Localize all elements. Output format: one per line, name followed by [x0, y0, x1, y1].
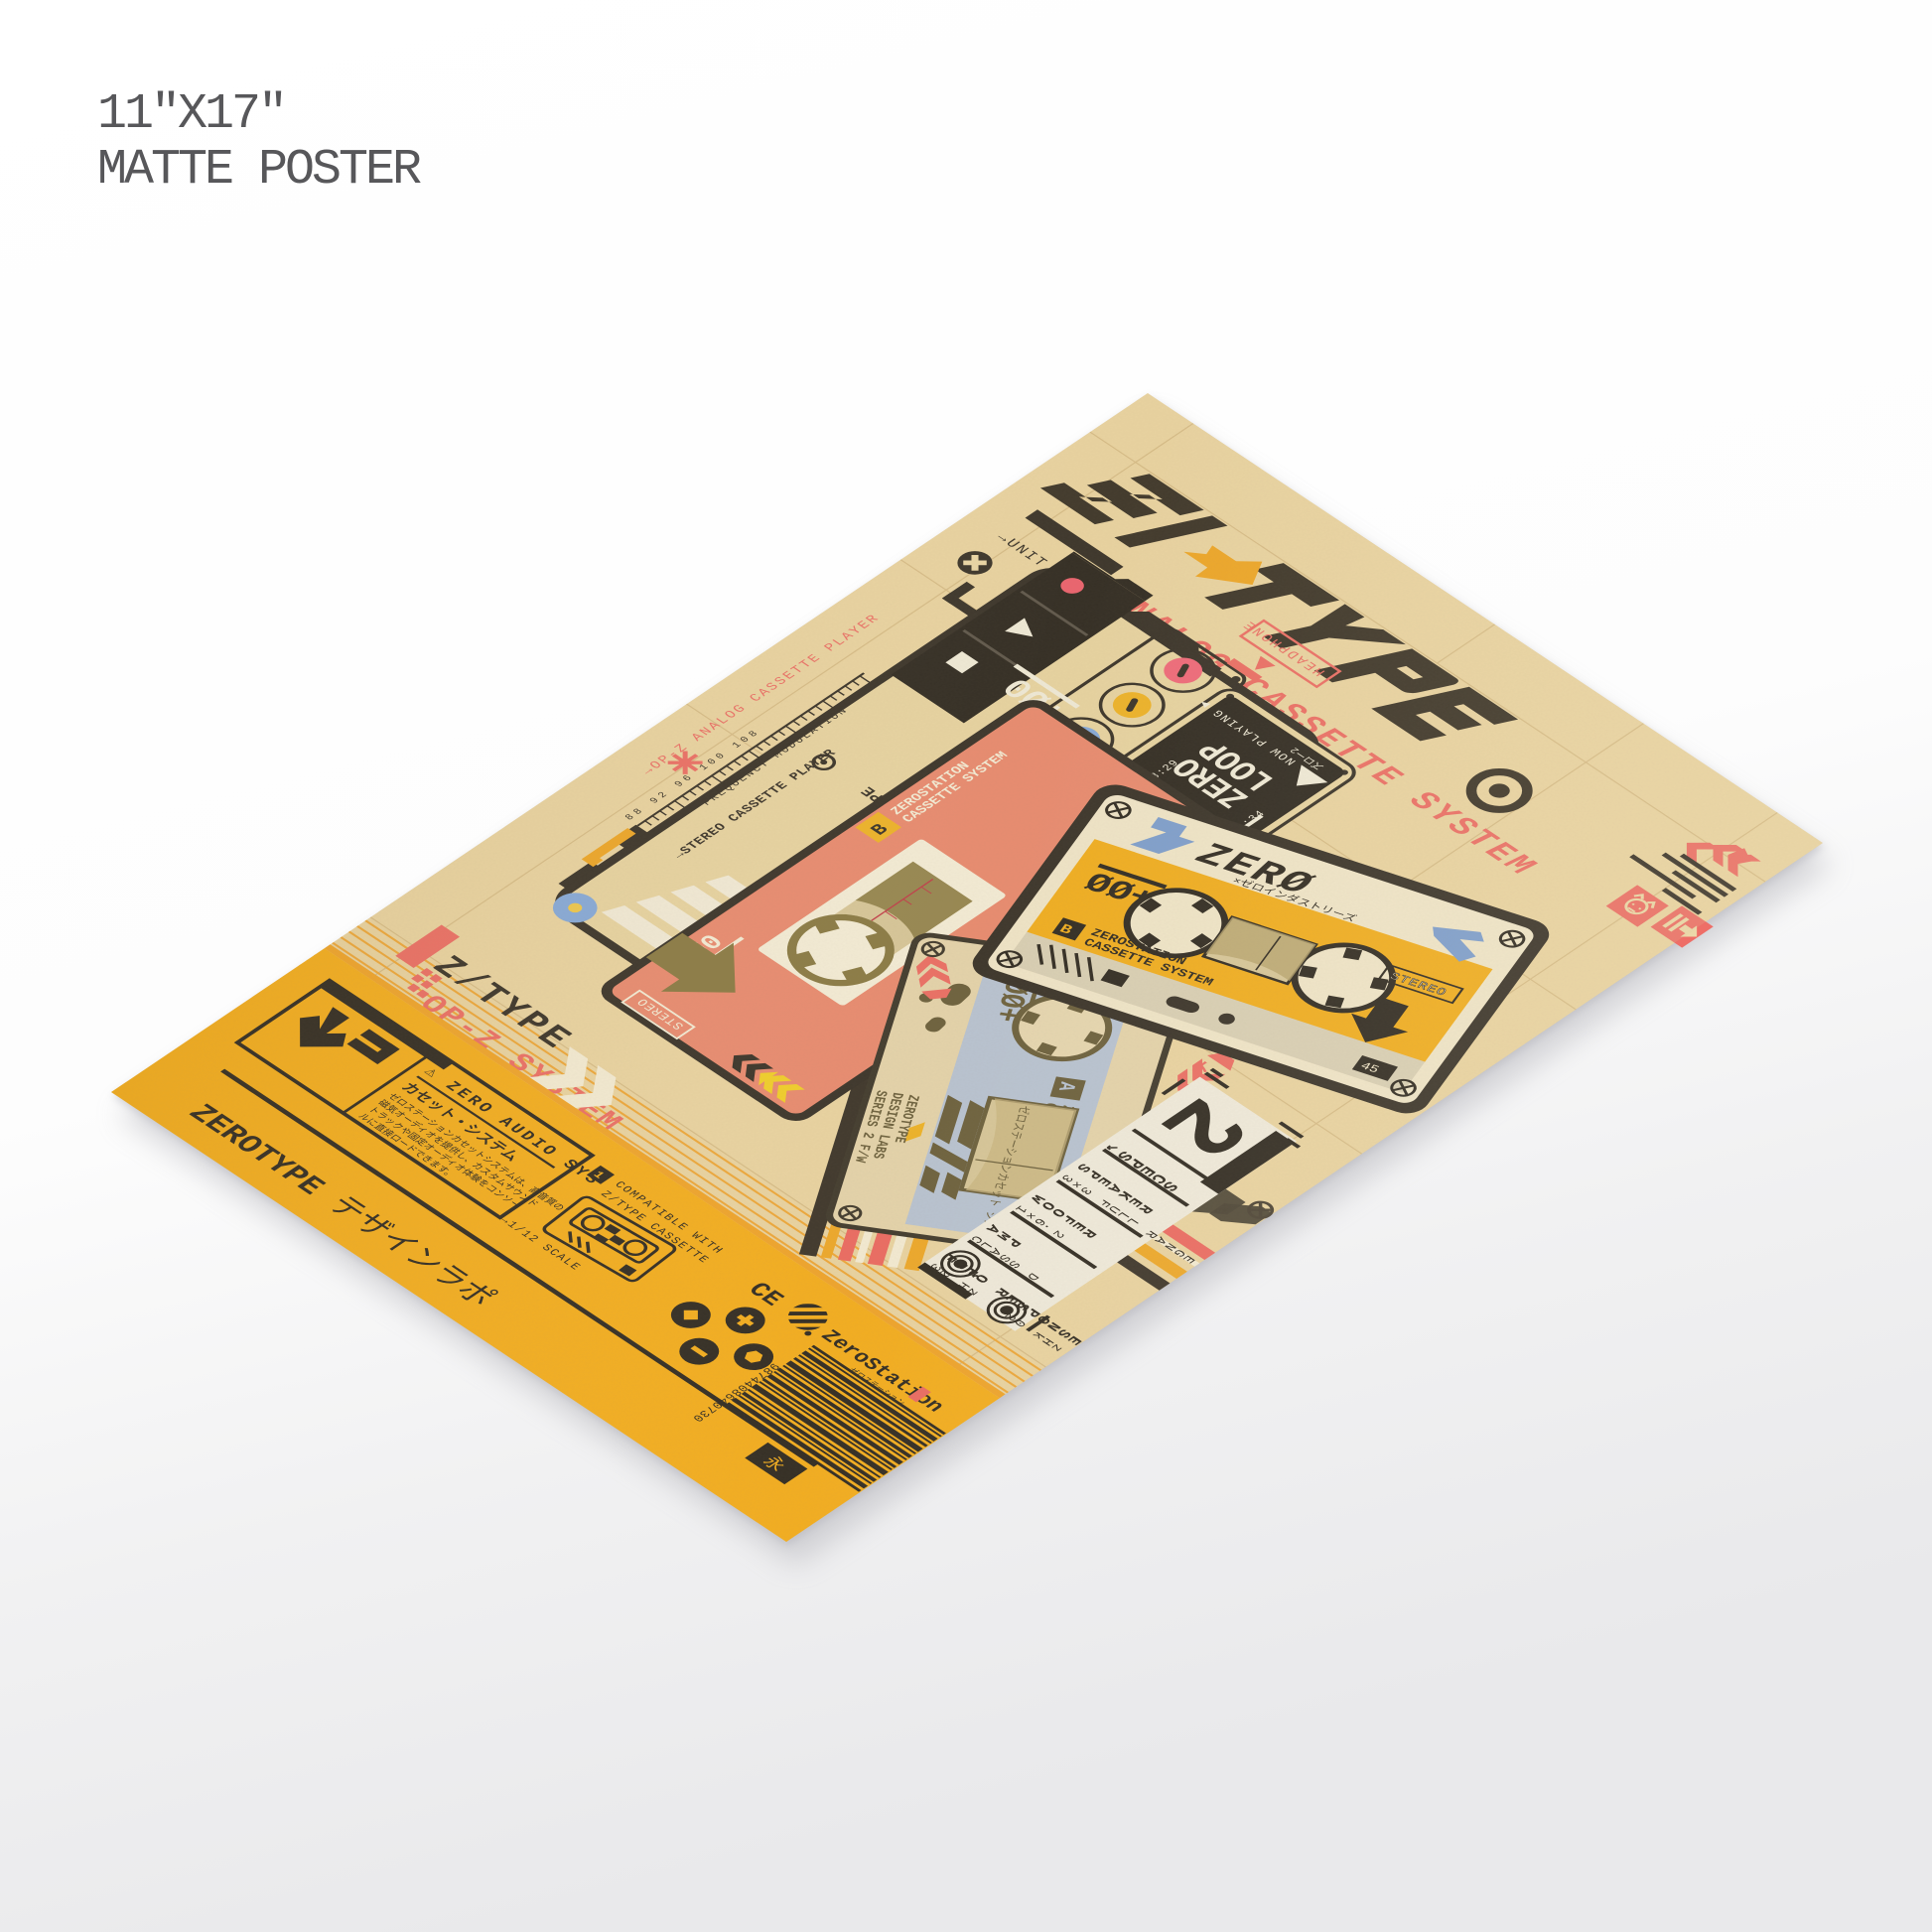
svg-text:MATTE POSTER: MATTE POSTER [97, 142, 421, 199]
svg-text:11″X17″: 11″X17″ [97, 86, 285, 143]
